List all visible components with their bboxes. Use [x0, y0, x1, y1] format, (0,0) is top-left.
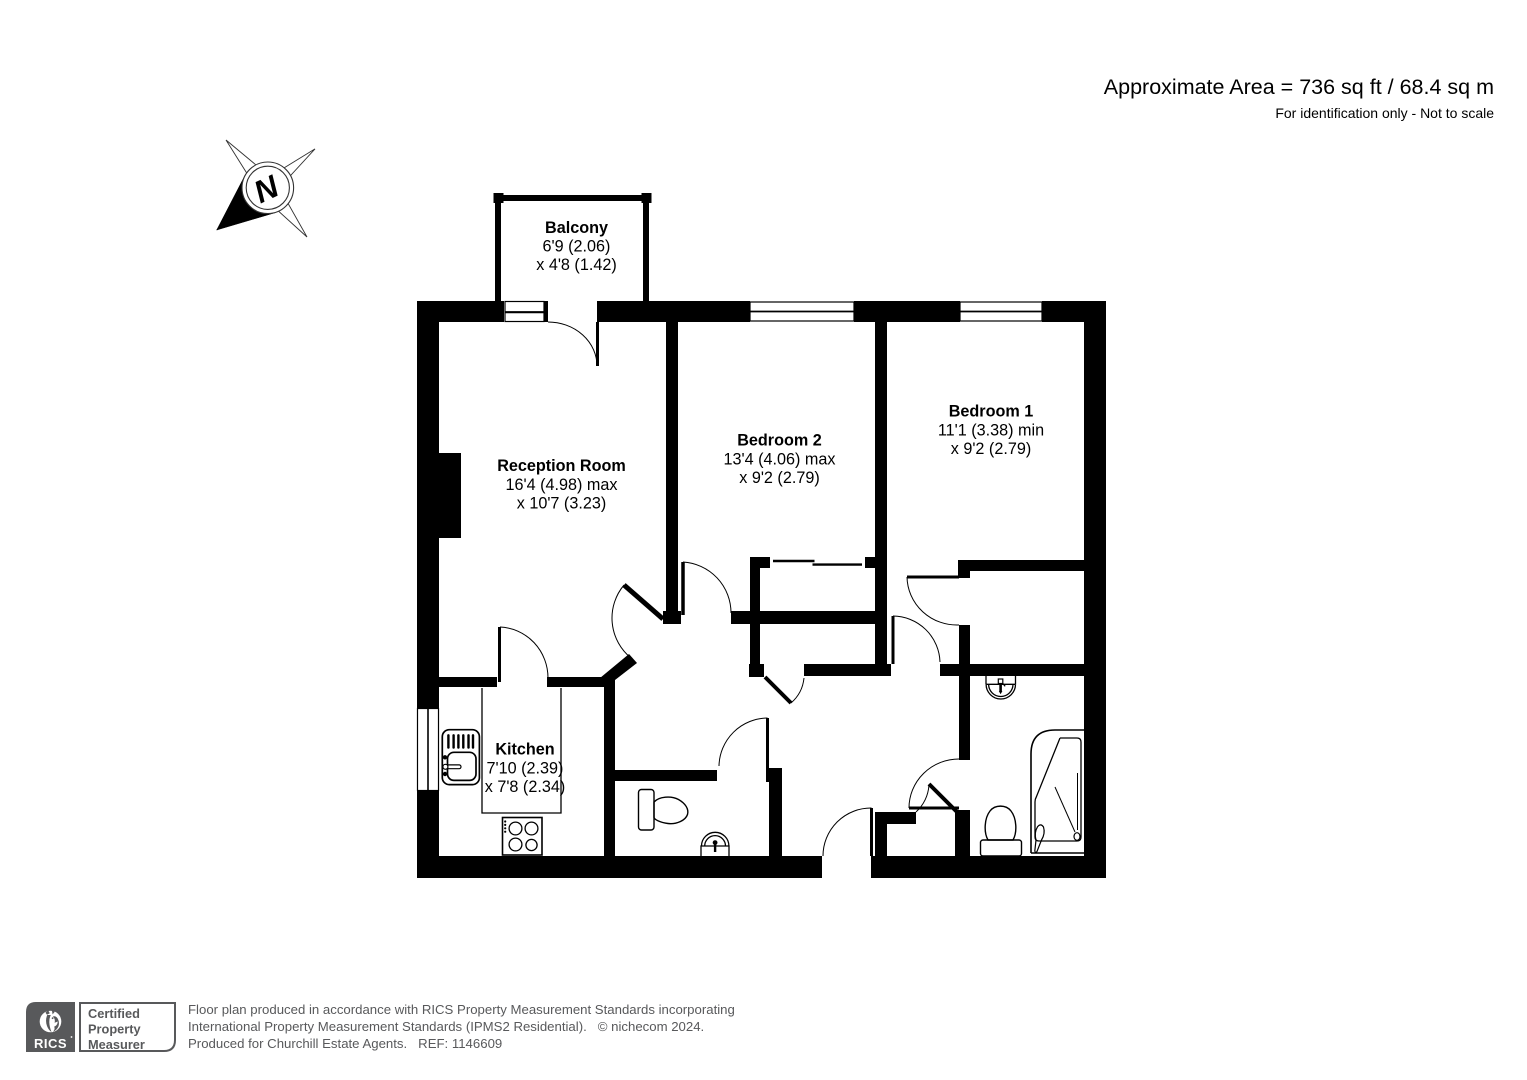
svg-text:x 4'8 (1.42): x 4'8 (1.42)	[536, 256, 616, 274]
svg-text:Bedroom 2: Bedroom 2	[737, 432, 822, 450]
svg-text:Bedroom 1: Bedroom 1	[949, 403, 1034, 421]
svg-text:6'9 (2.06): 6'9 (2.06)	[543, 238, 611, 256]
svg-text:Property: Property	[88, 1022, 142, 1037]
svg-text:Produced for Churchill Estate: Produced for Churchill Estate Agents. RE…	[188, 1036, 502, 1051]
svg-text:Kitchen: Kitchen	[495, 741, 554, 759]
svg-text:16'4 (4.98) max: 16'4 (4.98) max	[506, 476, 618, 494]
svg-text:Reception Room: Reception Room	[497, 457, 626, 475]
svg-text:Balcony: Balcony	[545, 219, 608, 237]
svg-text:For identification only - Not: For identification only - Not to scale	[1275, 105, 1494, 121]
svg-text:13'4 (4.06) max: 13'4 (4.06) max	[724, 450, 836, 468]
svg-text:RICS: RICS	[34, 1036, 67, 1051]
svg-text:Certified: Certified	[88, 1006, 140, 1021]
svg-text:Measurer: Measurer	[88, 1037, 145, 1052]
svg-text:International Property Measure: International Property Measurement Stand…	[188, 1019, 704, 1034]
svg-text:x 9'2 (2.79): x 9'2 (2.79)	[739, 469, 819, 487]
svg-text:Floor plan produced in accorda: Floor plan produced in accordance with R…	[188, 1002, 735, 1017]
svg-text:x 7'8 (2.34): x 7'8 (2.34)	[485, 778, 565, 796]
svg-text:11'1 (3.38) min: 11'1 (3.38) min	[938, 422, 1044, 440]
svg-text:7'10 (2.39): 7'10 (2.39)	[487, 759, 564, 777]
svg-text:Approximate Area = 736 sq ft /: Approximate Area = 736 sq ft / 68.4 sq m	[1104, 75, 1494, 99]
svg-text:x 10'7 (3.23): x 10'7 (3.23)	[517, 495, 606, 513]
svg-text:x 9'2 (2.79): x 9'2 (2.79)	[951, 440, 1031, 458]
